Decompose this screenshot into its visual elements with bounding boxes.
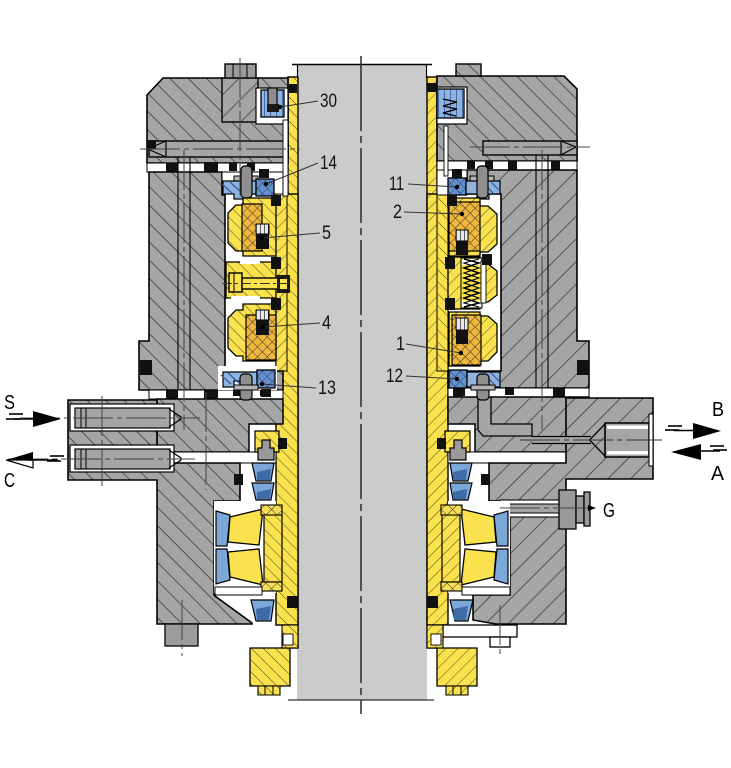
svg-text:B: B [712,399,724,421]
svg-text:5: 5 [322,223,331,244]
svg-text:14: 14 [320,153,337,174]
svg-text:G: G [603,500,615,522]
svg-text:30: 30 [320,91,337,112]
svg-text:12: 12 [386,366,403,387]
svg-text:2: 2 [393,202,402,223]
svg-text:4: 4 [322,313,331,334]
svg-text:11: 11 [389,174,404,195]
svg-text:A: A [711,463,725,485]
svg-text:13: 13 [318,378,336,399]
svg-text:C: C [4,470,15,492]
svg-text:S: S [4,392,15,414]
svg-text:1: 1 [396,334,405,355]
